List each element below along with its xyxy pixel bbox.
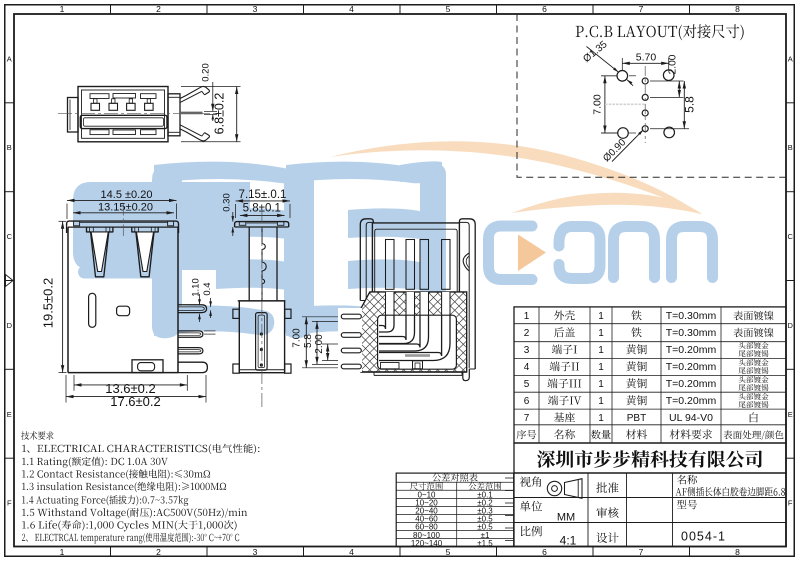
svg-text:1: 1 xyxy=(524,311,530,322)
svg-text:6: 6 xyxy=(524,396,530,407)
svg-text:3: 3 xyxy=(524,345,530,356)
svg-text:T=0.20mm: T=0.20mm xyxy=(666,378,717,390)
svg-text:19.5±0.2: 19.5±0.2 xyxy=(41,278,56,329)
svg-text:4: 4 xyxy=(349,547,354,557)
svg-text:120~140: 120~140 xyxy=(411,539,443,548)
svg-text:A: A xyxy=(788,55,793,64)
svg-text:2: 2 xyxy=(156,4,161,14)
svg-text:7: 7 xyxy=(639,547,644,557)
svg-text:1: 1 xyxy=(598,328,604,339)
svg-text:E: E xyxy=(7,410,12,419)
svg-text:8: 8 xyxy=(735,547,740,557)
svg-text:T=0.30mm: T=0.30mm xyxy=(666,310,717,322)
svg-text:B: B xyxy=(7,143,12,152)
svg-text:MM: MM xyxy=(557,512,575,524)
svg-text:5: 5 xyxy=(446,4,451,14)
svg-text:4: 4 xyxy=(349,4,354,14)
svg-text:1: 1 xyxy=(598,379,604,390)
svg-text:3: 3 xyxy=(253,4,258,14)
svg-text:2.00: 2.00 xyxy=(667,54,678,74)
svg-text:1: 1 xyxy=(598,413,604,424)
svg-text:8: 8 xyxy=(735,4,740,14)
svg-text:0.4: 0.4 xyxy=(202,282,213,295)
svg-text:1: 1 xyxy=(60,4,65,14)
svg-text:T=0.30mm: T=0.30mm xyxy=(666,327,717,339)
svg-text:F: F xyxy=(788,499,793,508)
svg-text:1: 1 xyxy=(598,345,604,356)
svg-text:T=0.20mm: T=0.20mm xyxy=(666,395,717,407)
svg-text:4: 4 xyxy=(524,362,530,373)
svg-text:0.20: 0.20 xyxy=(201,63,212,82)
svg-text:0.30: 0.30 xyxy=(222,193,233,212)
svg-text:1: 1 xyxy=(598,396,604,407)
svg-text:5.8: 5.8 xyxy=(303,334,314,348)
svg-text:1: 1 xyxy=(598,311,604,322)
svg-text:4:1: 4:1 xyxy=(560,534,577,548)
svg-text:E: E xyxy=(788,410,793,419)
svg-text:D: D xyxy=(7,321,13,330)
svg-text:7.00: 7.00 xyxy=(592,94,604,115)
svg-text:6.8±0.2: 6.8±0.2 xyxy=(213,93,227,135)
svg-text:6: 6 xyxy=(542,4,547,14)
svg-text:2: 2 xyxy=(156,547,161,557)
svg-text:T=0.20mm: T=0.20mm xyxy=(666,361,717,373)
svg-text:UL 94-V0: UL 94-V0 xyxy=(669,412,713,424)
svg-text:F: F xyxy=(7,499,12,508)
svg-text:T=0.20mm: T=0.20mm xyxy=(666,344,717,356)
svg-text:A: A xyxy=(7,55,12,64)
svg-text:7.00: 7.00 xyxy=(292,328,303,348)
svg-text:5: 5 xyxy=(524,379,530,390)
svg-text:6: 6 xyxy=(542,547,547,557)
svg-text:2: 2 xyxy=(524,328,530,339)
svg-text:7: 7 xyxy=(524,413,530,424)
svg-text:7.15±.0.1: 7.15±.0.1 xyxy=(239,189,287,201)
svg-text:D: D xyxy=(787,321,793,330)
svg-text:17.6±0.2: 17.6±0.2 xyxy=(110,394,161,409)
svg-text:1: 1 xyxy=(60,547,65,557)
svg-text:PBT: PBT xyxy=(627,413,646,424)
svg-text:1: 1 xyxy=(598,362,604,373)
svg-text:1.10: 1.10 xyxy=(191,278,202,297)
svg-text:C: C xyxy=(7,232,13,241)
svg-text:5.70: 5.70 xyxy=(636,52,657,64)
svg-text:13.15±0.20: 13.15±0.20 xyxy=(98,201,153,213)
svg-text:14.5 ±0.20: 14.5 ±0.20 xyxy=(101,189,153,201)
svg-text:3: 3 xyxy=(253,547,258,557)
svg-text:±1.5: ±1.5 xyxy=(477,539,493,548)
svg-text:C: C xyxy=(787,232,793,241)
svg-text:0054-1: 0054-1 xyxy=(681,529,726,543)
svg-text:B: B xyxy=(788,143,793,152)
svg-text:5.8: 5.8 xyxy=(682,96,696,113)
svg-text:7: 7 xyxy=(639,4,644,14)
svg-text:5: 5 xyxy=(446,547,451,557)
